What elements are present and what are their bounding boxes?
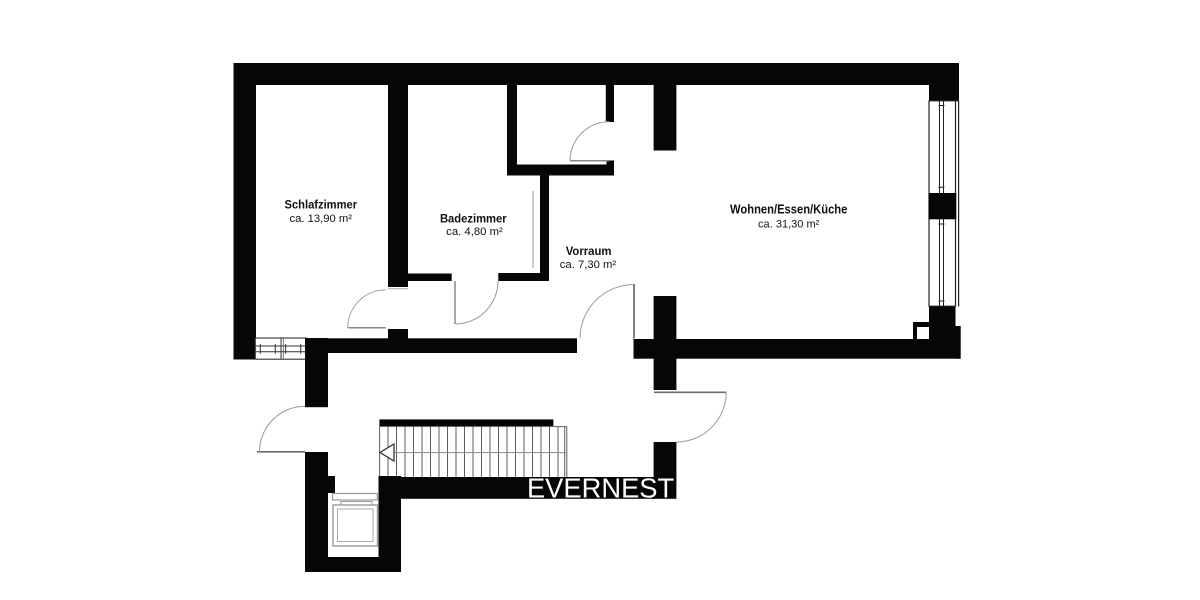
svg-text:ca. 31,30 m²: ca. 31,30 m² bbox=[758, 219, 820, 231]
svg-text:Schlafzimmer: Schlafzimmer bbox=[285, 198, 358, 212]
svg-text:EVERNEST: EVERNEST bbox=[527, 473, 674, 504]
svg-text:ca. 4,80 m²: ca. 4,80 m² bbox=[446, 226, 503, 238]
svg-text:ca. 13,90 m²: ca. 13,90 m² bbox=[290, 213, 353, 225]
svg-text:Vorraum: Vorraum bbox=[566, 244, 612, 258]
svg-text:ca. 7,30 m²: ca. 7,30 m² bbox=[560, 259, 617, 271]
svg-text:Wohnen/Essen/Küche: Wohnen/Essen/Küche bbox=[730, 203, 847, 217]
svg-text:Badezimmer: Badezimmer bbox=[440, 212, 507, 226]
